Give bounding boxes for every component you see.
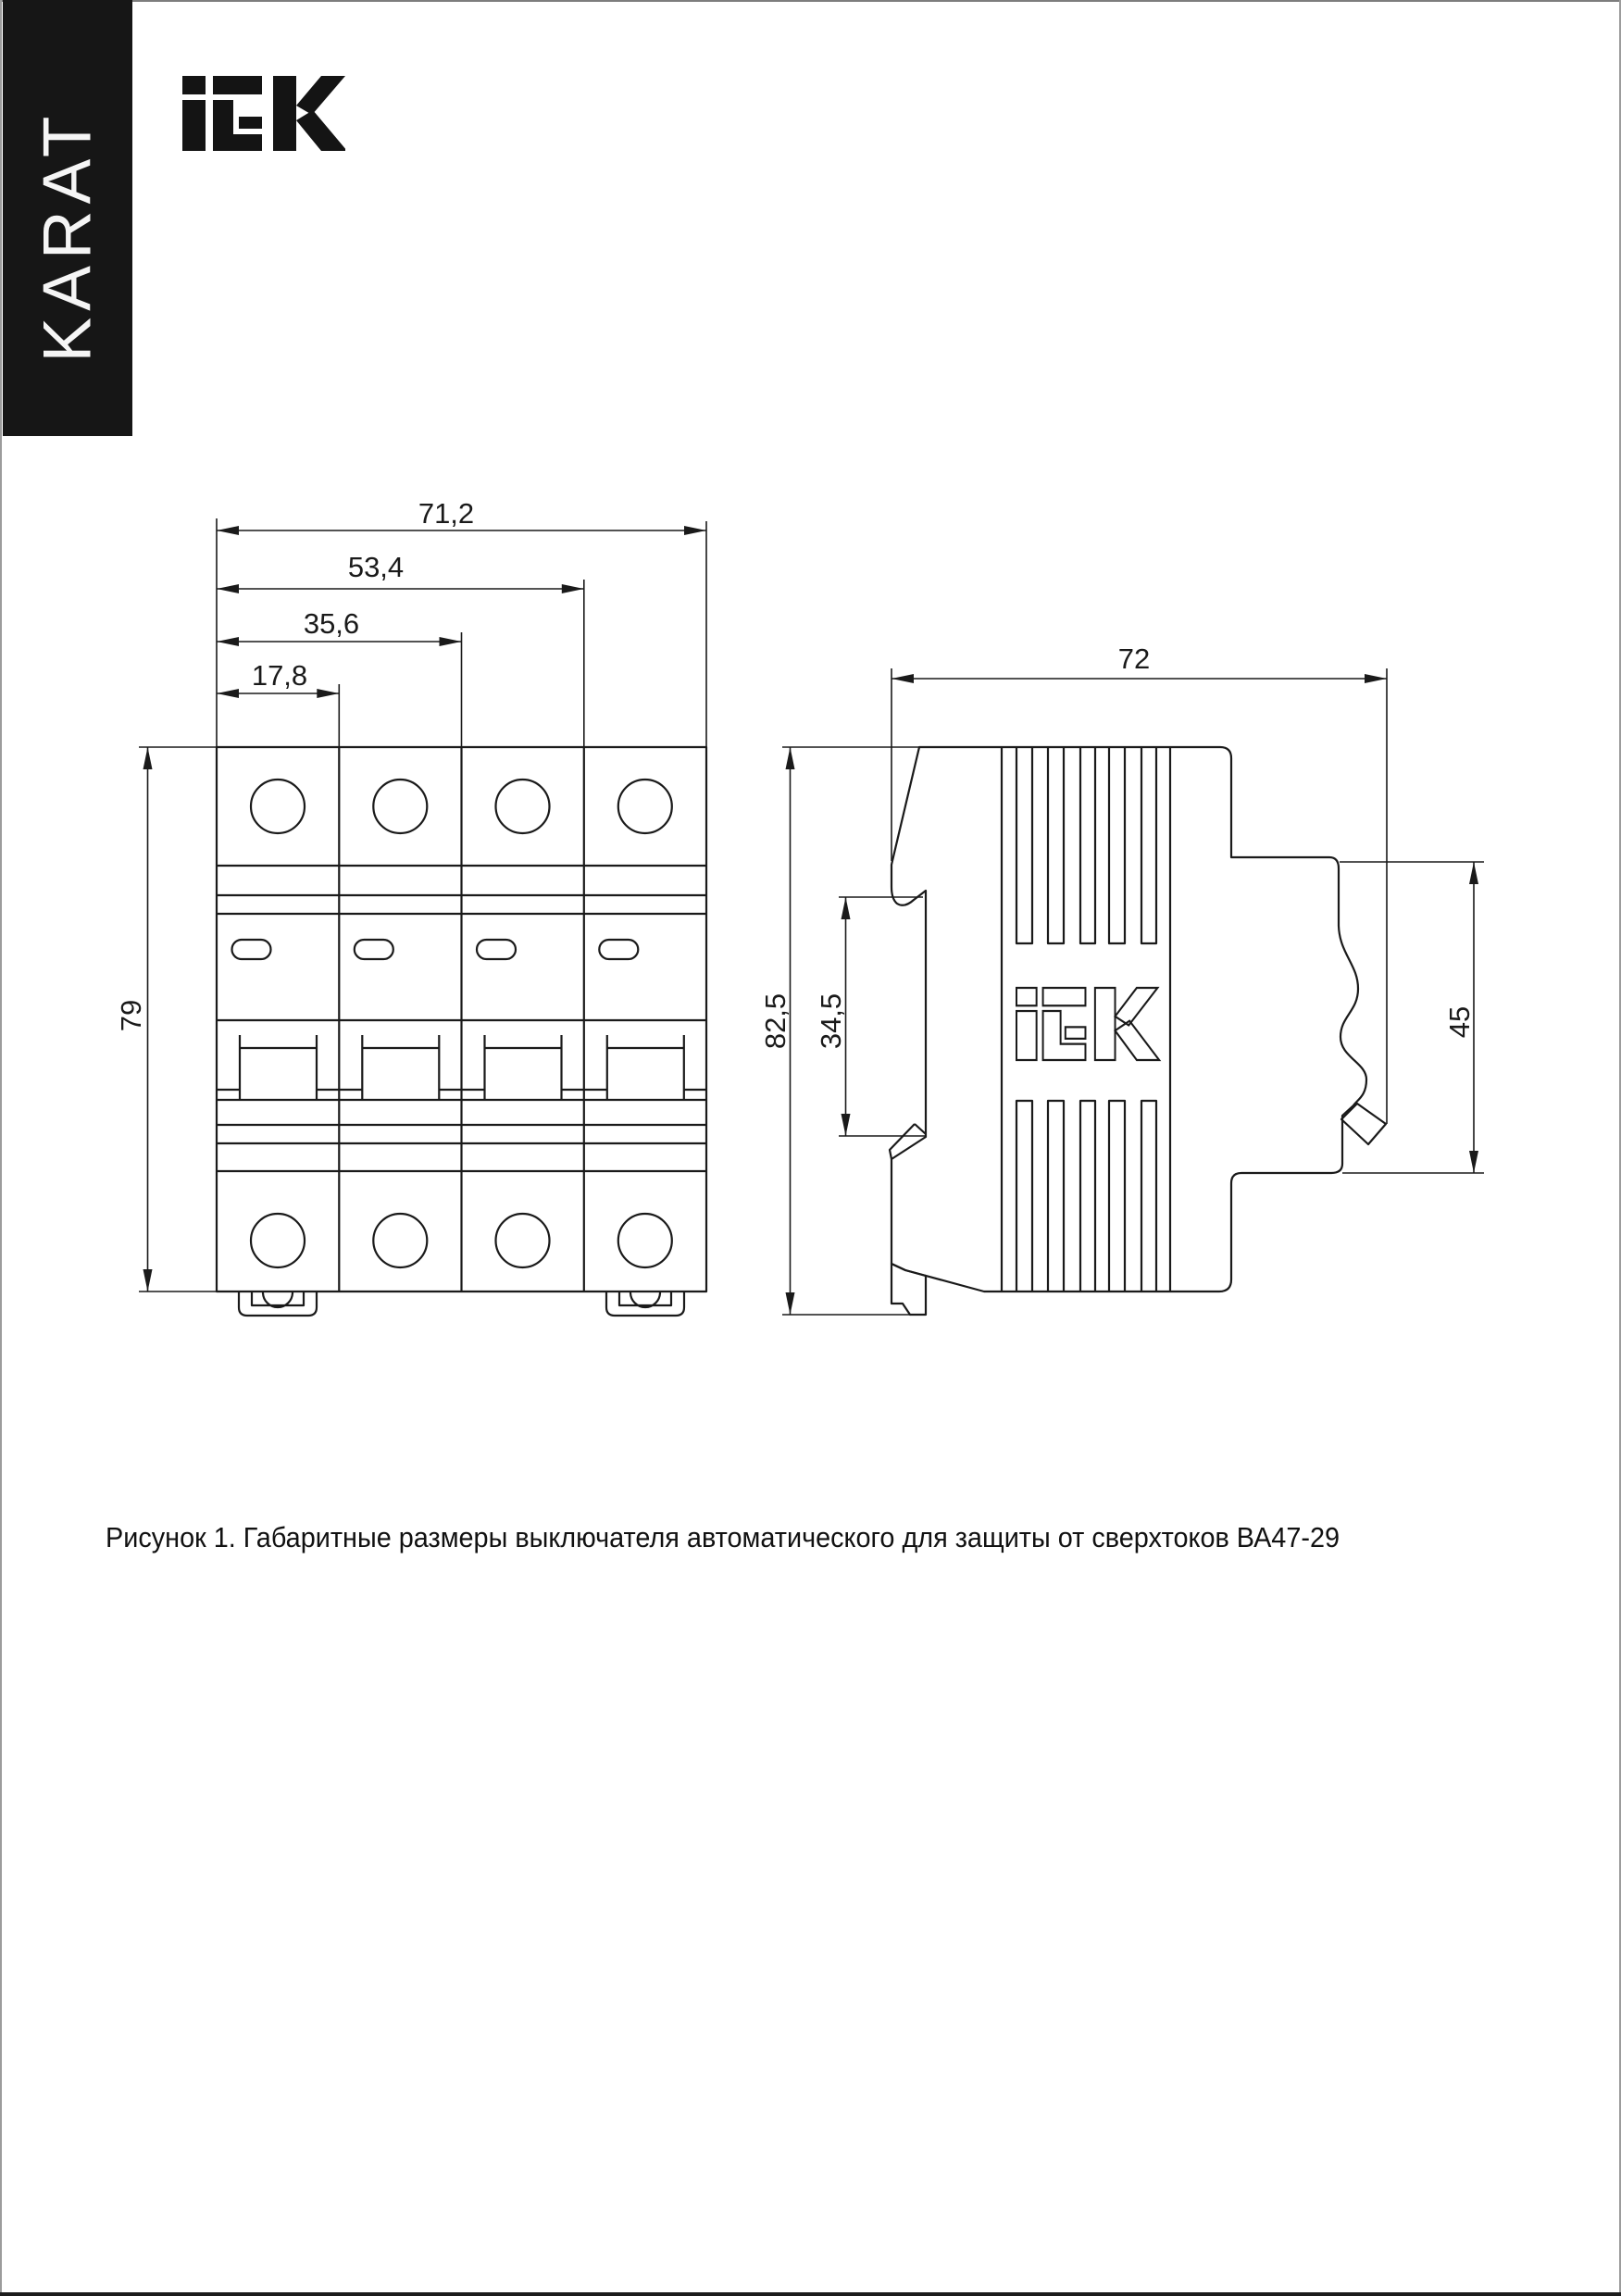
dim-label-two-module-width: 35,6: [304, 607, 359, 640]
dim-label-one-module-width: 17,8: [252, 659, 307, 692]
din-clip-window: [619, 1291, 671, 1305]
dim-label-din-recess: 34,5: [815, 993, 847, 1049]
din-clip-window: [252, 1291, 304, 1305]
dim-label-three-module-width: 53,4: [348, 551, 404, 583]
dimension-drawing: 71,2 53,4 35,6 17,8 79 72 82,5 34,5 45: [0, 0, 1621, 2296]
dim-label-overall-width: 71,2: [418, 497, 474, 530]
figure-caption: Рисунок 1. Габаритные размеры выключател…: [106, 1521, 1340, 1554]
front-din-clips: [239, 1291, 684, 1316]
din-clip-tab: [606, 1291, 684, 1316]
din-clip-tab: [239, 1291, 317, 1316]
dim-label-front-depth: 45: [1443, 1006, 1476, 1038]
dim-label-overall-height: 79: [115, 1000, 147, 1031]
datasheet-page: KARAT: [0, 0, 1621, 2296]
side-view: [890, 747, 1386, 1315]
front-view: [217, 747, 706, 1316]
dim-label-overall-depth: 72: [1118, 643, 1150, 675]
side-body-outline: [892, 747, 1366, 1291]
dim-label-height-with-clip: 82,5: [759, 993, 792, 1049]
